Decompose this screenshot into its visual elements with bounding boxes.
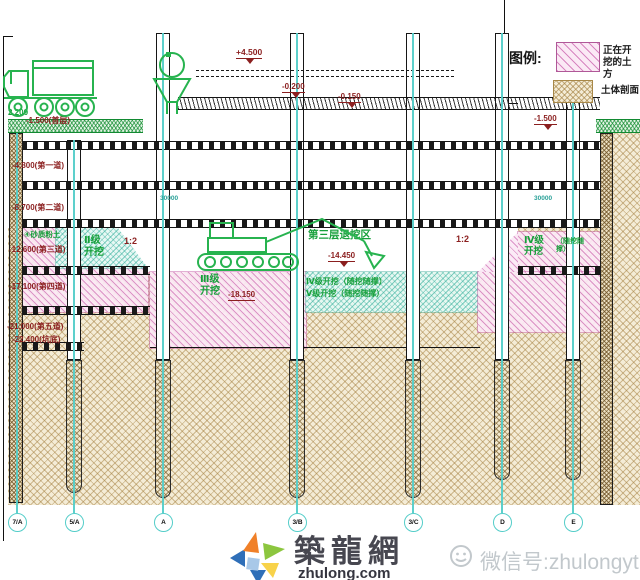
zone-level3-label: Ⅲ级开挖 [200, 274, 226, 297]
legend-excavating-swatch [556, 42, 600, 72]
zhulong-logo-icon [228, 530, 288, 580]
axis-line-E [572, 88, 574, 513]
hopper-icon [146, 50, 198, 116]
strut-level5-left [22, 306, 150, 315]
legend-soil-swatch [553, 80, 593, 103]
elevation-slab-b: -0.150 [338, 93, 361, 103]
axis-line-D [501, 33, 503, 513]
elevation-pit-bottom: -22.400(坑底) [12, 336, 60, 344]
elevation-mark-icon [246, 59, 254, 64]
dashed-line-lower [196, 76, 454, 77]
legend-soil-label: 土体剖面 [601, 85, 639, 97]
soil-layer-label: ④砂质粉土 [24, 231, 60, 240]
pit-bottom-line [150, 347, 480, 348]
zone-level2-label: Ⅱ级开挖 [84, 235, 110, 258]
wechat-icon [448, 544, 476, 570]
legend-excavating-label: 正在开挖的土方 [603, 45, 639, 81]
watermark-site-name: 築龍網 [294, 536, 405, 567]
elevation-platform-top: +4.500 [236, 48, 262, 59]
excavator-icon [190, 212, 390, 274]
dashed-line-upper [196, 70, 454, 71]
zone-level4-right-note: （随挖随撑） [556, 238, 592, 254]
soil-right-margin [613, 133, 640, 505]
elevation-strut4: -17.100(第四道) [9, 283, 65, 291]
dimension-span-left: 30000 [160, 196, 178, 203]
ground-surface-right [596, 119, 640, 133]
slope-ratio-left: 1:2 [124, 237, 137, 246]
strut-level4-right [518, 266, 600, 275]
zone-center-pink-level3 [150, 272, 306, 348]
diaphragm-wall-right [600, 133, 613, 505]
axis-bubble-5A: 5/A [65, 513, 84, 532]
watermark-site-domain: zhulong.com [298, 566, 391, 580]
elevation-slab-a: -0.200 [282, 83, 305, 93]
elevation-strut3: -12.600(第三道) [9, 246, 65, 254]
axis-bubble-3C: 3/C [404, 513, 423, 532]
axis-bubble-3B: 3/B [288, 513, 307, 532]
axis-bubble-E: E [564, 513, 583, 532]
elevation-strut1: -4.800(第一道) [12, 162, 64, 170]
axis-bubble-D: D [493, 513, 512, 532]
zone-level4-label: Ⅳ级开挖（随挖随撑） [306, 277, 387, 286]
axis-bubble-7A: 7/A [8, 513, 27, 532]
elevation-ground-right: -1.500 [534, 115, 557, 125]
zone-level5-label: Ⅴ级开挖（随挖随撑） [306, 289, 384, 298]
axis-bubble-A: A [154, 513, 173, 532]
elevation-mark-icon [348, 103, 356, 108]
axis-line-3C [412, 33, 414, 513]
slope-ratio-right: 1:2 [456, 235, 469, 244]
watermark-wechat-id: 微信号:zhulongyt [480, 546, 639, 576]
strut-level4-left [22, 266, 150, 275]
elevation-mark-icon [292, 93, 300, 98]
legend-title: 图例: [509, 48, 542, 68]
elevation-mark-icon [544, 125, 552, 130]
elevation-dig-level: -18.150 [228, 291, 255, 301]
strut-level2 [22, 181, 600, 190]
dump-truck-icon [2, 54, 102, 120]
strut-level1 [22, 141, 600, 150]
elevation-strut2: -8.700(第二道) [12, 204, 64, 212]
zone-level4-right-label: Ⅳ级开挖 [524, 236, 548, 258]
frame-top-tick [3, 36, 13, 37]
dimension-span-right: 30000 [534, 196, 552, 203]
excavation-section-drawing: +4.500 -0.200 -0.150 -1.500(首层) -1.500 -… [0, 0, 640, 580]
platform-slab [178, 97, 600, 110]
elevation-strut5: -21.000(第五道) [7, 323, 63, 331]
axis-line-5A [73, 140, 75, 513]
